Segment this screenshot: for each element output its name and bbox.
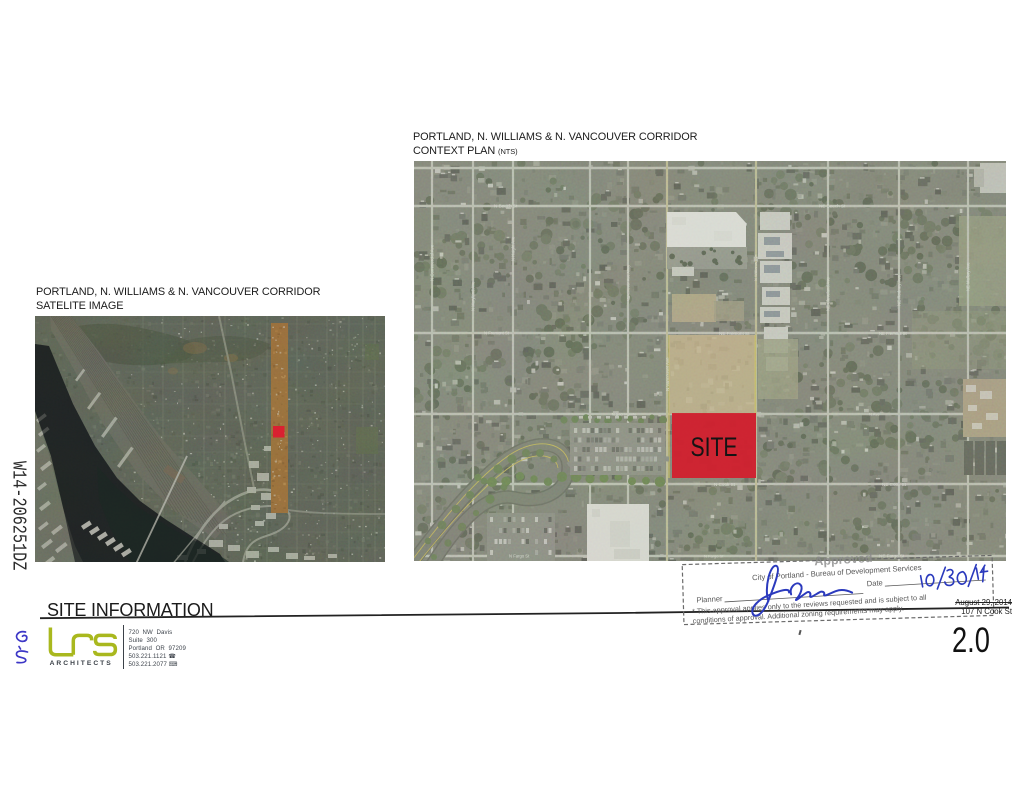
svg-text:Planner: Planner <box>696 594 723 605</box>
svg-text:Date: Date <box>866 578 883 588</box>
svg-text:ARCHITECTS: ARCHITECTS <box>50 660 113 667</box>
svg-text:SITE: SITE <box>691 432 738 462</box>
